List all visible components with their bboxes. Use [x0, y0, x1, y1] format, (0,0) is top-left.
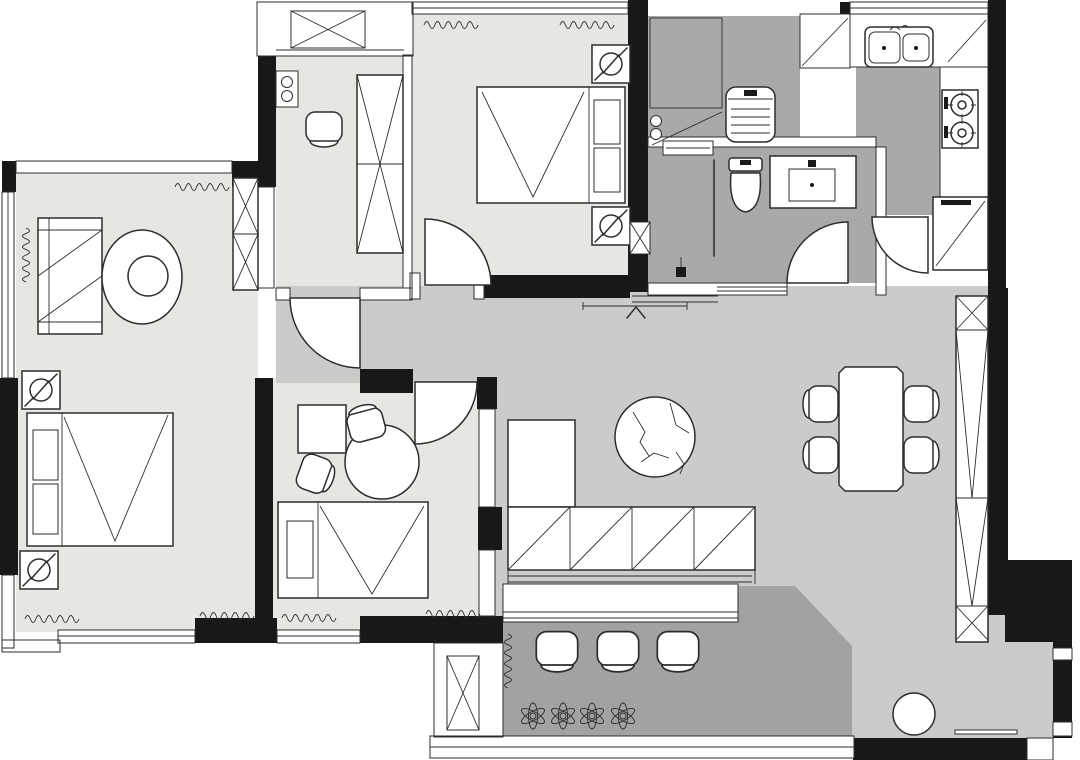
lounge-chair	[102, 230, 182, 324]
storage-column	[956, 296, 988, 642]
toilet	[729, 158, 762, 212]
balcony-chair	[597, 632, 638, 672]
balcony-chair	[536, 632, 577, 672]
double-bed	[27, 413, 173, 546]
tall-cabinet-icon	[357, 75, 403, 253]
dining-chair	[904, 386, 939, 422]
dining-chair	[803, 386, 838, 422]
floor-mat-line	[955, 730, 1017, 734]
pipe-shaft	[630, 222, 650, 254]
desk-chair	[306, 112, 342, 147]
coffee-table	[615, 397, 695, 477]
double-bed	[477, 87, 625, 203]
nightstand-lamp	[20, 551, 58, 589]
wardrobe-icon	[233, 178, 258, 290]
double-sink	[865, 26, 933, 68]
round-stool	[893, 693, 935, 735]
washing-machine-box	[291, 11, 365, 48]
nightstand-lamp	[592, 45, 630, 83]
balcony-chair	[657, 632, 698, 672]
single-bed	[278, 502, 428, 598]
nightstand-lamp	[592, 207, 630, 245]
dining-chair	[803, 437, 838, 473]
shelf-with-meters	[276, 71, 298, 107]
floor-laundry-niche	[648, 16, 800, 147]
dining-chair	[904, 437, 939, 473]
dresser	[38, 218, 102, 334]
dining-table	[839, 367, 903, 491]
towel-shelf	[663, 141, 713, 155]
fridge-cabinet	[933, 197, 988, 270]
floor-plan-image	[0, 0, 1080, 760]
gas-stove	[942, 90, 978, 148]
shaft-x-box	[447, 656, 479, 730]
nightstand-lamp	[22, 371, 60, 409]
meter-circle	[651, 129, 662, 140]
vanity-sink	[770, 156, 856, 208]
left-cabinet	[800, 14, 850, 68]
meter-circle	[651, 116, 662, 127]
floor-plan-canvas	[0, 0, 1080, 760]
washing-machine	[726, 87, 775, 142]
square-rug	[298, 405, 346, 453]
